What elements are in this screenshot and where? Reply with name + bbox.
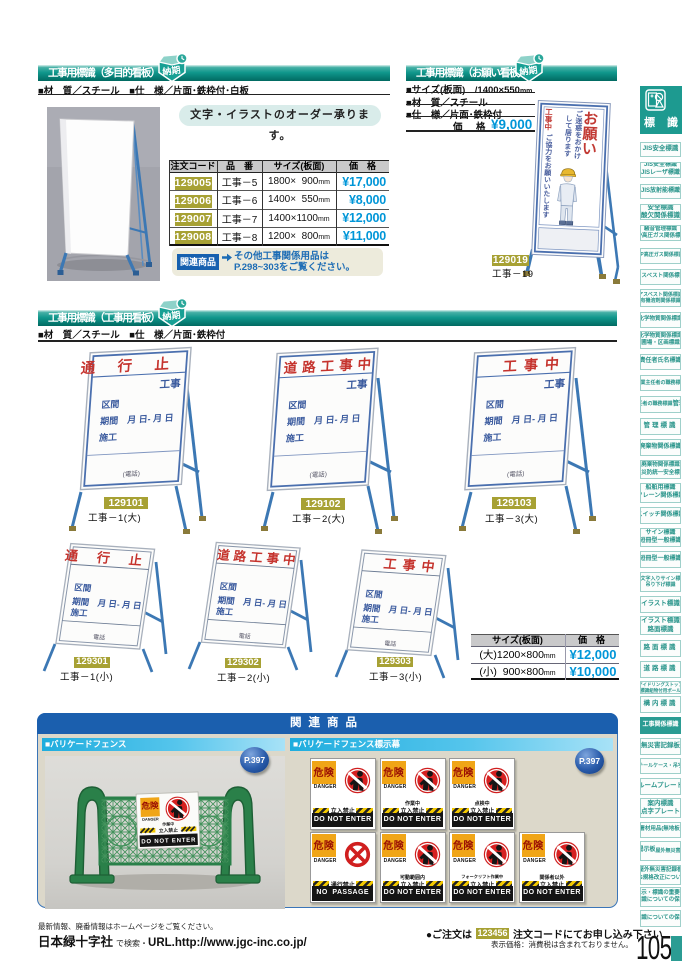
svg-text:お願い: お願い: [580, 110, 599, 156]
svg-text:区間: 区間: [74, 582, 92, 593]
svg-text:施工: 施工: [99, 431, 118, 443]
svg-text:施工: 施工: [286, 432, 305, 444]
svg-text:工事: 工事: [346, 378, 368, 392]
svg-text:区間: 区間: [101, 399, 120, 410]
svg-text:作業中: 作業中: [162, 820, 174, 826]
svg-text:区間: 区間: [219, 581, 237, 592]
svg-text:DANGER: DANGER: [142, 817, 159, 822]
svg-text:危険: 危険: [140, 800, 159, 811]
svg-text:施工: 施工: [361, 614, 380, 625]
svg-text:工事中: 工事中: [543, 107, 553, 131]
svg-text:区間: 区間: [365, 589, 383, 600]
svg-text:施工: 施工: [483, 431, 502, 443]
svg-text:区間: 区間: [288, 400, 307, 411]
svg-text:納期: 納期: [162, 309, 181, 322]
svg-text:工事中: 工事中: [502, 355, 566, 374]
svg-text:納期: 納期: [162, 64, 181, 77]
svg-text:施工: 施工: [70, 607, 89, 618]
svg-text:納期: 納期: [519, 64, 538, 77]
svg-text:工事: 工事: [544, 377, 566, 391]
svg-text:区間: 区間: [485, 399, 504, 410]
svg-text:施工: 施工: [215, 606, 234, 617]
svg-text:工事: 工事: [159, 377, 181, 391]
